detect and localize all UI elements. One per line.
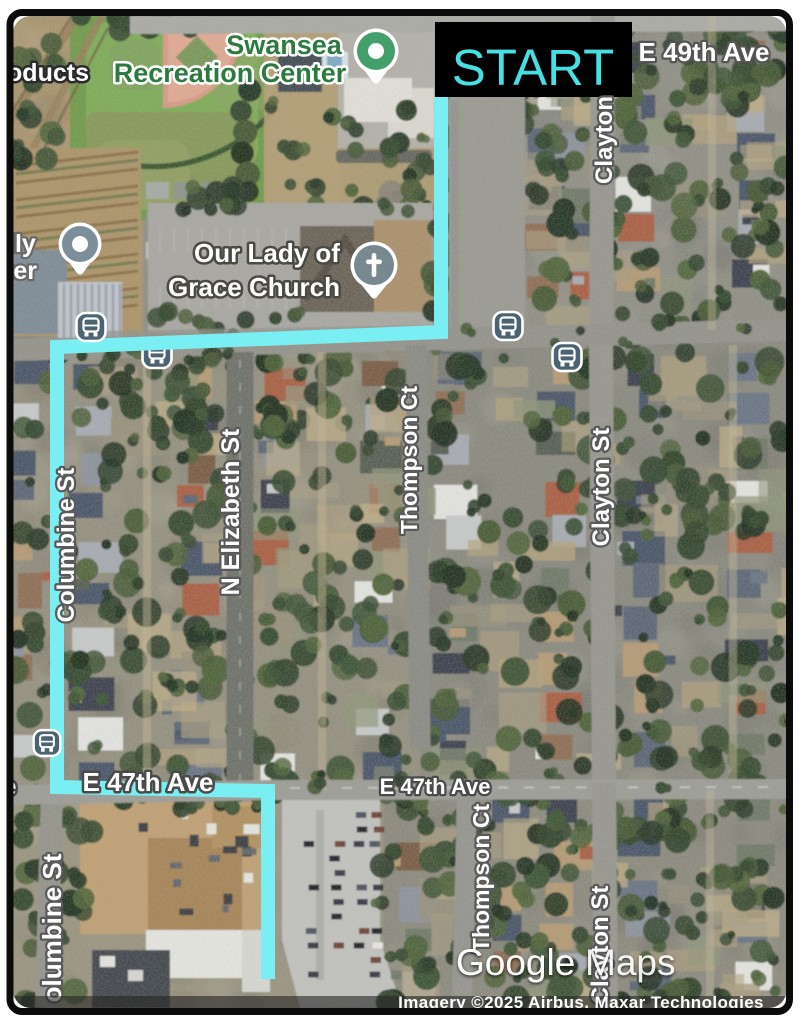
svg-text:START: START: [452, 39, 614, 96]
svg-text:Thompson Ct: Thompson Ct: [396, 386, 422, 535]
svg-text:E 49th Ave: E 49th Ave: [638, 37, 769, 67]
svg-text:E 47th Ave: E 47th Ave: [380, 774, 491, 799]
svg-text:Thompson Ct: Thompson Ct: [468, 804, 494, 953]
svg-text:Recreation Center: Recreation Center: [114, 58, 347, 88]
svg-text:Google: Google: [456, 942, 575, 983]
svg-text:Grace Church: Grace Church: [168, 272, 340, 302]
svg-text:Maps: Maps: [585, 942, 675, 983]
svg-text:Our Lady of: Our Lady of: [194, 238, 340, 268]
svg-text:E 47th Ave: E 47th Ave: [82, 767, 213, 797]
svg-text:Clayton: Clayton: [591, 96, 618, 184]
svg-text:Swansea: Swansea: [226, 30, 343, 60]
svg-text:Columbine St: Columbine St: [53, 468, 80, 623]
svg-text:oducts: oducts: [7, 59, 89, 87]
svg-text:Clayton St: Clayton St: [588, 428, 615, 547]
svg-text:N Elizabeth St: N Elizabeth St: [217, 428, 245, 595]
svg-text:olumbine St: olumbine St: [37, 853, 67, 1002]
